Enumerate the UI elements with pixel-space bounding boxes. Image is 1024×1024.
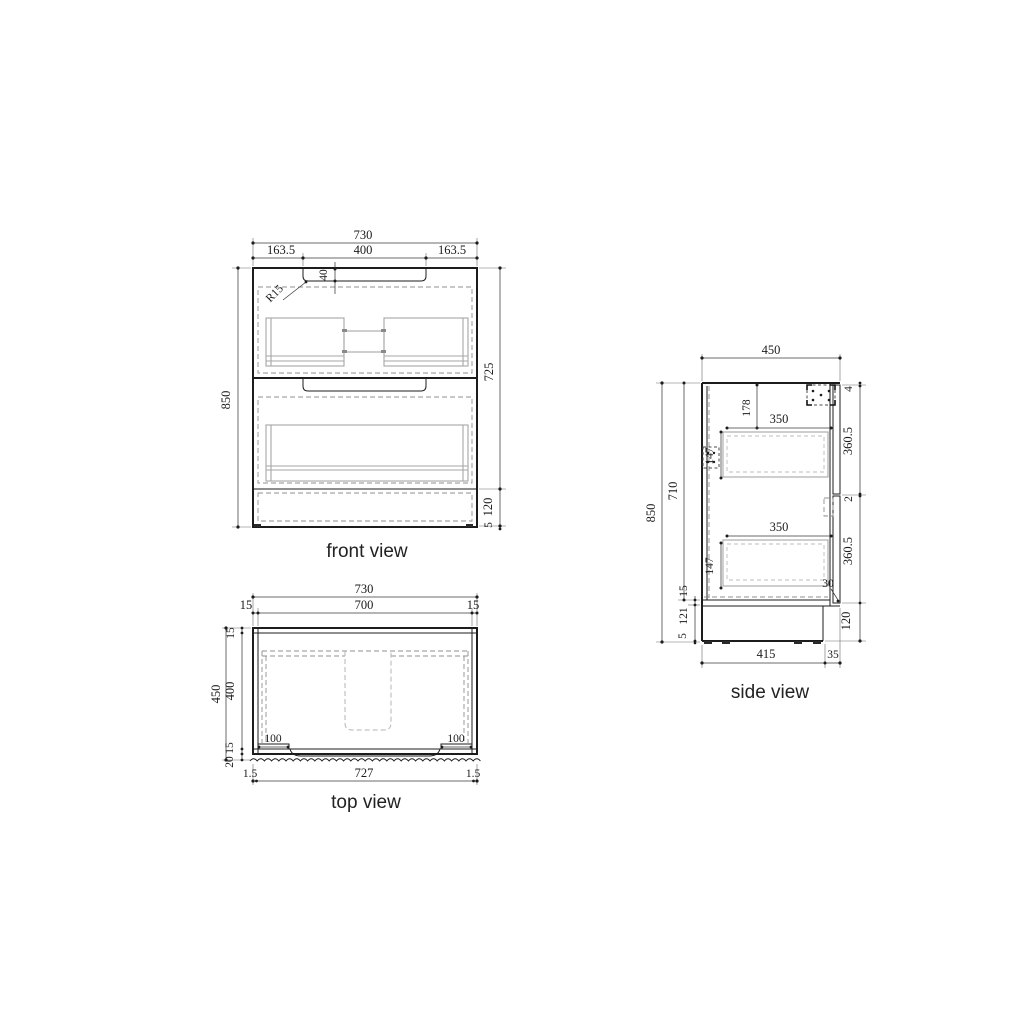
side-view-drawer-boxes	[723, 432, 828, 586]
dim-side-gap-top: 4	[843, 386, 855, 392]
dim-side-carcass-height: 710	[666, 482, 680, 501]
dim-side-kick: 120	[839, 612, 853, 631]
dim-side-step: 30	[822, 578, 834, 590]
dim-front-width-mid: 400	[354, 243, 373, 257]
dim-top-inset-right: 100	[447, 733, 465, 745]
dim-side-foot: 5	[677, 633, 689, 639]
dim-top-wall-left: 15	[240, 598, 253, 612]
dim-top-front-rail: 15	[224, 742, 236, 754]
top-view-hidden-lines	[262, 651, 468, 743]
dim-side-depth-total: 450	[762, 343, 781, 357]
dim-side-gap-mid: 2	[843, 496, 855, 502]
dim-front-kick-height: 120	[481, 498, 495, 517]
dim-side-overhang: 35	[827, 649, 839, 661]
dim-front-radius: R15	[264, 283, 286, 305]
dim-side-box-lower: 147	[704, 557, 716, 575]
dim-front-width-total: 730	[354, 228, 373, 242]
front-view: 730 163.5 400 163.5 40 R15 850	[219, 228, 506, 562]
dim-side-leg-space: 121	[678, 607, 690, 625]
dim-front-width-left: 163.5	[267, 243, 295, 257]
front-view-hidden-lines	[258, 287, 472, 521]
top-view-label: top view	[331, 792, 401, 813]
side-view-fixing-detail	[807, 385, 835, 405]
dim-top-back-panel: 15	[225, 627, 237, 639]
front-view-label: front view	[326, 541, 408, 562]
dim-front-body-height: 725	[482, 363, 496, 382]
dim-top-wall-right: 15	[467, 598, 480, 612]
side-view: 450 850 710 15 121 5	[644, 343, 866, 703]
dim-top-edge-right: 1.5	[466, 768, 481, 780]
dim-top-depth-total: 450	[209, 685, 223, 704]
dim-side-box-upper: 147	[704, 447, 716, 465]
dim-front-recess-depth: 40	[318, 269, 330, 281]
dim-front-width-right: 163.5	[438, 243, 466, 257]
technical-drawing-canvas: 730 163.5 400 163.5 40 R15 850	[0, 0, 1024, 1024]
vanity-cabinet-drawing: 730 163.5 400 163.5 40 R15 850	[0, 0, 1024, 1024]
top-view-outline	[250, 628, 480, 761]
front-view-drawer-interiors	[266, 318, 468, 481]
front-view-outline	[253, 268, 477, 527]
dim-front-height-total: 850	[219, 391, 233, 410]
dim-top-front-width: 727	[355, 766, 374, 780]
top-view: 730 15 700 15 450 15 400 15 20 100	[209, 582, 480, 813]
side-view-label: side view	[731, 682, 809, 703]
dim-front-foot-height: 5	[483, 522, 495, 528]
dim-top-inset-left: 100	[264, 733, 282, 745]
dim-side-depth-upper: 350	[770, 412, 789, 426]
dim-side-front-lower: 360.5	[841, 537, 855, 565]
dim-side-height-total: 850	[644, 504, 658, 523]
dim-side-top-offset: 178	[741, 399, 753, 417]
dim-top-width-inner: 700	[355, 598, 374, 612]
dim-side-bottom-panel: 15	[678, 585, 690, 597]
front-view-dimensions: 730 163.5 400 163.5 40 R15 850	[219, 228, 506, 530]
dim-side-depth-lower: 350	[770, 520, 789, 534]
dim-top-depth-inner: 400	[223, 682, 237, 701]
dim-top-front-edge: 20	[224, 756, 236, 768]
dim-side-front-upper: 360.5	[841, 427, 855, 455]
dim-side-base-depth: 415	[757, 647, 776, 661]
dim-top-width-total: 730	[355, 582, 374, 596]
dim-top-edge-left: 1.5	[243, 768, 258, 780]
